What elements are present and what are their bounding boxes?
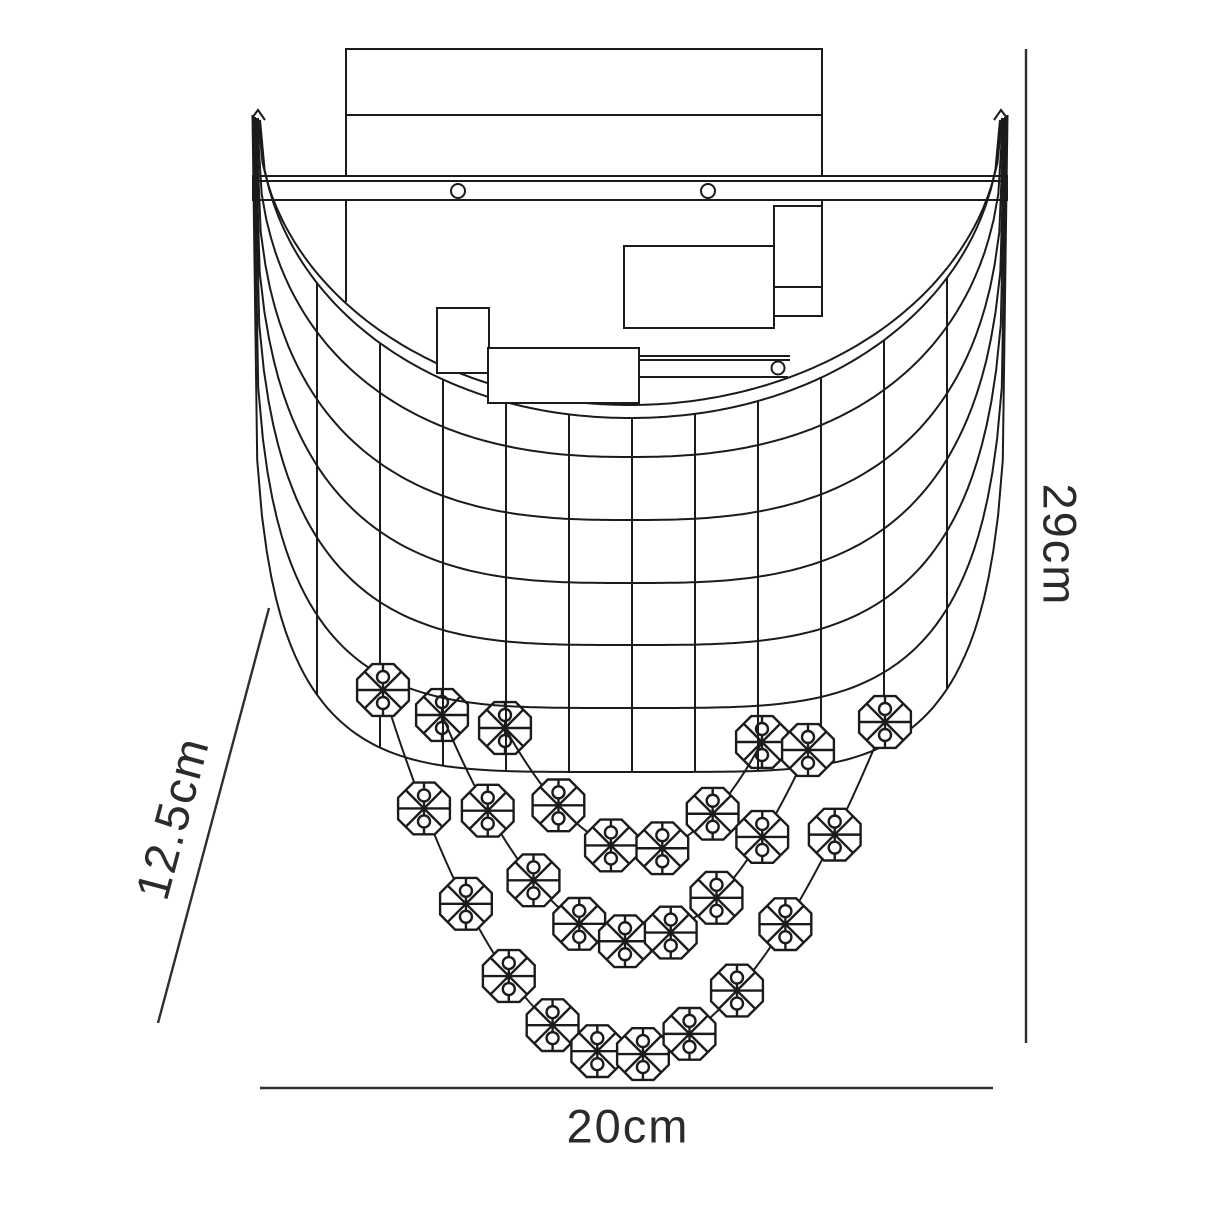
crystal-bead: [691, 872, 743, 924]
crystal-bead: [398, 783, 450, 835]
bead-link-circle: [637, 1061, 649, 1073]
bead-link-circle: [591, 1058, 603, 1070]
bead-link-circle: [802, 757, 814, 769]
backplate: [346, 49, 822, 176]
bead-link-circle: [482, 818, 494, 830]
lamp-fitting-rect: [488, 348, 639, 403]
crystal-bead: [599, 915, 651, 967]
bead-link-circle: [377, 671, 389, 683]
bead-link-circle: [418, 789, 430, 801]
bead-link-circle: [707, 821, 719, 833]
crystal-bead: [571, 1025, 623, 1077]
fitting-box: [774, 206, 822, 287]
bead-link-circle: [756, 844, 768, 856]
crystal-bead: [809, 809, 861, 861]
wall-light-dimension-diagram: 29cm 20cm 12.5cm: [0, 0, 1214, 1214]
bead-link-circle: [418, 815, 430, 827]
bead-link-circle: [547, 1032, 559, 1044]
crystal-bead: [645, 907, 697, 959]
shade-rib-curve: [254, 116, 1007, 708]
crystal-bead: [859, 696, 911, 748]
bead-link-circle: [377, 697, 389, 709]
bead-link-circle: [656, 855, 668, 867]
crystal-bead: [462, 785, 514, 837]
line-drawing: [0, 0, 1214, 1214]
bead-link-circle: [605, 852, 617, 864]
bead-link-circle: [683, 1015, 695, 1027]
bead-link-circle: [619, 922, 631, 934]
height-dimension-label: 29cm: [1033, 484, 1088, 607]
bead-link-circle: [711, 879, 723, 891]
bead-link-circle: [665, 940, 677, 952]
crystal-bead: [533, 779, 585, 831]
bead-link-circle: [829, 842, 841, 854]
bead-link-circle: [591, 1032, 603, 1044]
bead-link-circle: [656, 829, 668, 841]
crystal-bead: [508, 854, 560, 906]
front-fittings: [437, 246, 774, 403]
bead-link-circle: [779, 905, 791, 917]
bead-link-circle: [879, 729, 891, 741]
screw-hole: [451, 184, 465, 198]
crystal-bead: [664, 1008, 716, 1060]
screw-hole: [701, 184, 715, 198]
bead-link-circle: [503, 983, 515, 995]
bead-link-circle: [829, 816, 841, 828]
bead-link-circle: [547, 1006, 559, 1018]
bead-link-circle: [528, 861, 540, 873]
bead-link-circle: [731, 972, 743, 984]
crystal-bead: [483, 950, 535, 1002]
screw-hole: [772, 362, 785, 375]
bead-link-circle: [552, 786, 564, 798]
bead-link-circle: [683, 1041, 695, 1053]
lamp-fitting-rect: [437, 308, 489, 373]
bead-link-circle: [460, 911, 472, 923]
crystal-bead: [782, 724, 834, 776]
width-dimension-label: 20cm: [567, 1099, 690, 1154]
fitting-box: [774, 287, 822, 316]
crystal-bead: [687, 788, 739, 840]
crystal-bead: [760, 898, 812, 950]
beads-behind-shade: [416, 689, 788, 768]
crystal-bead: [440, 878, 492, 930]
crystal-bead: [553, 898, 605, 950]
bead-link-circle: [707, 795, 719, 807]
crystal-bead: [585, 820, 637, 872]
crystal-bead: [711, 965, 763, 1017]
bead-link-circle: [802, 731, 814, 743]
mounting-bracket: [253, 176, 1007, 200]
bead-link-circle: [665, 914, 677, 926]
bead-link-circle: [503, 957, 515, 969]
crystal-bead: [357, 664, 409, 716]
bead-link-circle: [552, 812, 564, 824]
crystal-bead: [636, 822, 688, 874]
bead-link-circle: [619, 948, 631, 960]
crystal-bead: [617, 1028, 669, 1080]
bead-link-circle: [482, 792, 494, 804]
lamp-fitting-rect: [624, 246, 774, 328]
bead-link-circle: [731, 998, 743, 1010]
bead-link-circle: [637, 1035, 649, 1047]
bead-link-circle: [460, 885, 472, 897]
crystal-bead: [736, 811, 788, 863]
bead-link-circle: [573, 931, 585, 943]
bead-link-circle: [756, 818, 768, 830]
bead-link-circle: [528, 887, 540, 899]
bead-link-circle: [573, 905, 585, 917]
bead-link-circle: [711, 905, 723, 917]
bead-link-circle: [605, 826, 617, 838]
bead-link-circle: [879, 703, 891, 715]
bead-link-circle: [779, 931, 791, 943]
